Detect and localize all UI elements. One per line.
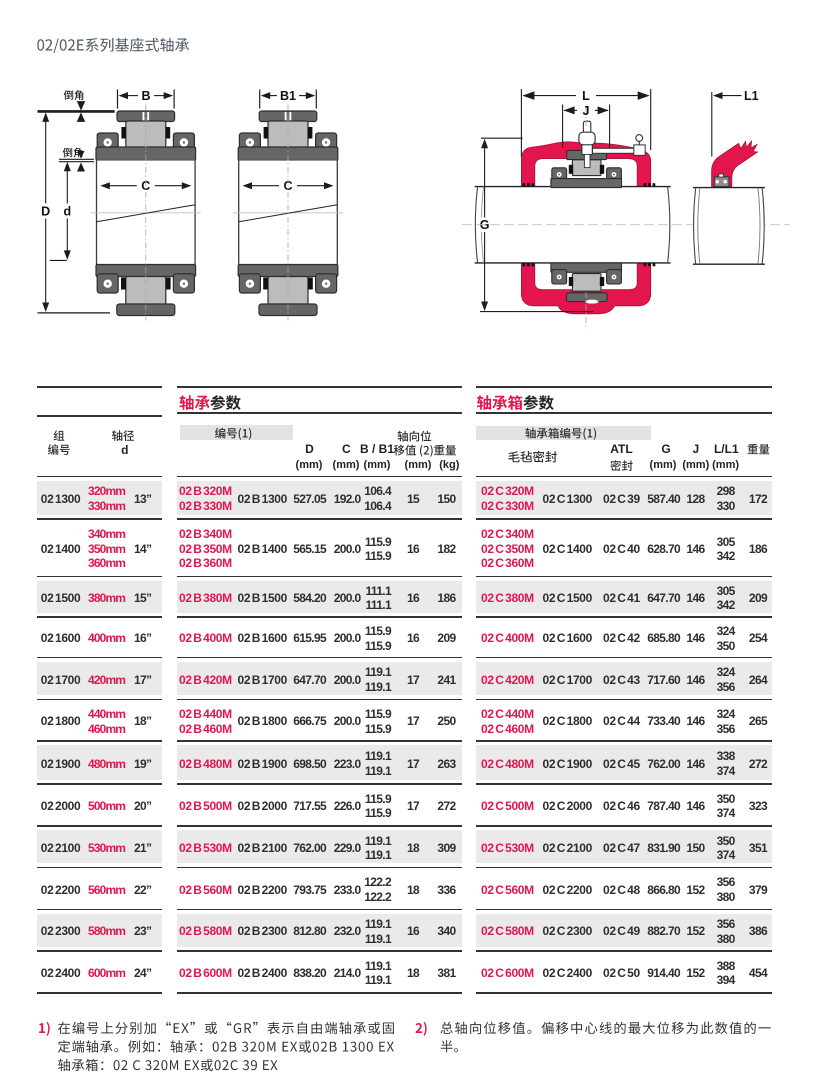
svg-text:L: L xyxy=(582,89,590,103)
svg-text:B1: B1 xyxy=(280,89,296,103)
svg-text:B: B xyxy=(141,89,150,103)
svg-text:D: D xyxy=(41,205,50,219)
svg-text:d: d xyxy=(63,205,71,219)
svg-text:J: J xyxy=(583,104,590,118)
svg-text:d: d xyxy=(121,443,128,457)
svg-text:L1: L1 xyxy=(744,89,759,103)
